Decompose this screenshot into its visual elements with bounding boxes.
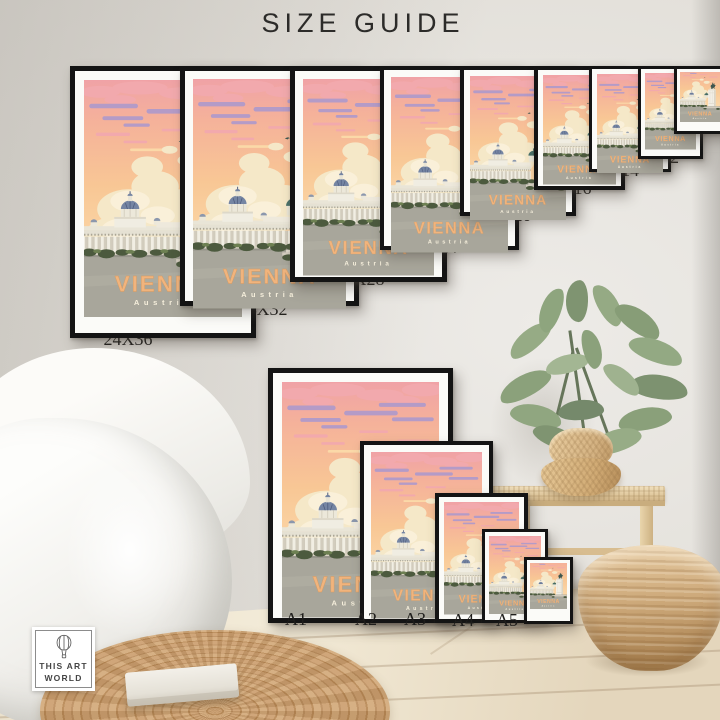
size-label-a4: A4	[452, 610, 474, 631]
size-guide-mockup: VIENNA Austria SIZE GUIDE THIS ART	[0, 0, 720, 720]
page-title: SIZE GUIDE	[261, 8, 464, 39]
size-label-a2: A2	[355, 609, 377, 630]
poster-6x8	[674, 66, 720, 134]
size-label-a3: A3	[404, 609, 426, 630]
size-label-a1: A1	[285, 609, 307, 630]
brand-logo: THIS ART WORLD	[32, 627, 95, 691]
hot-air-balloon-icon	[53, 634, 75, 660]
poster-a5	[524, 557, 573, 624]
logo-line2: WORLD	[44, 673, 82, 684]
logo-line1: THIS ART	[39, 661, 87, 672]
size-label-a5: A5	[496, 610, 518, 631]
